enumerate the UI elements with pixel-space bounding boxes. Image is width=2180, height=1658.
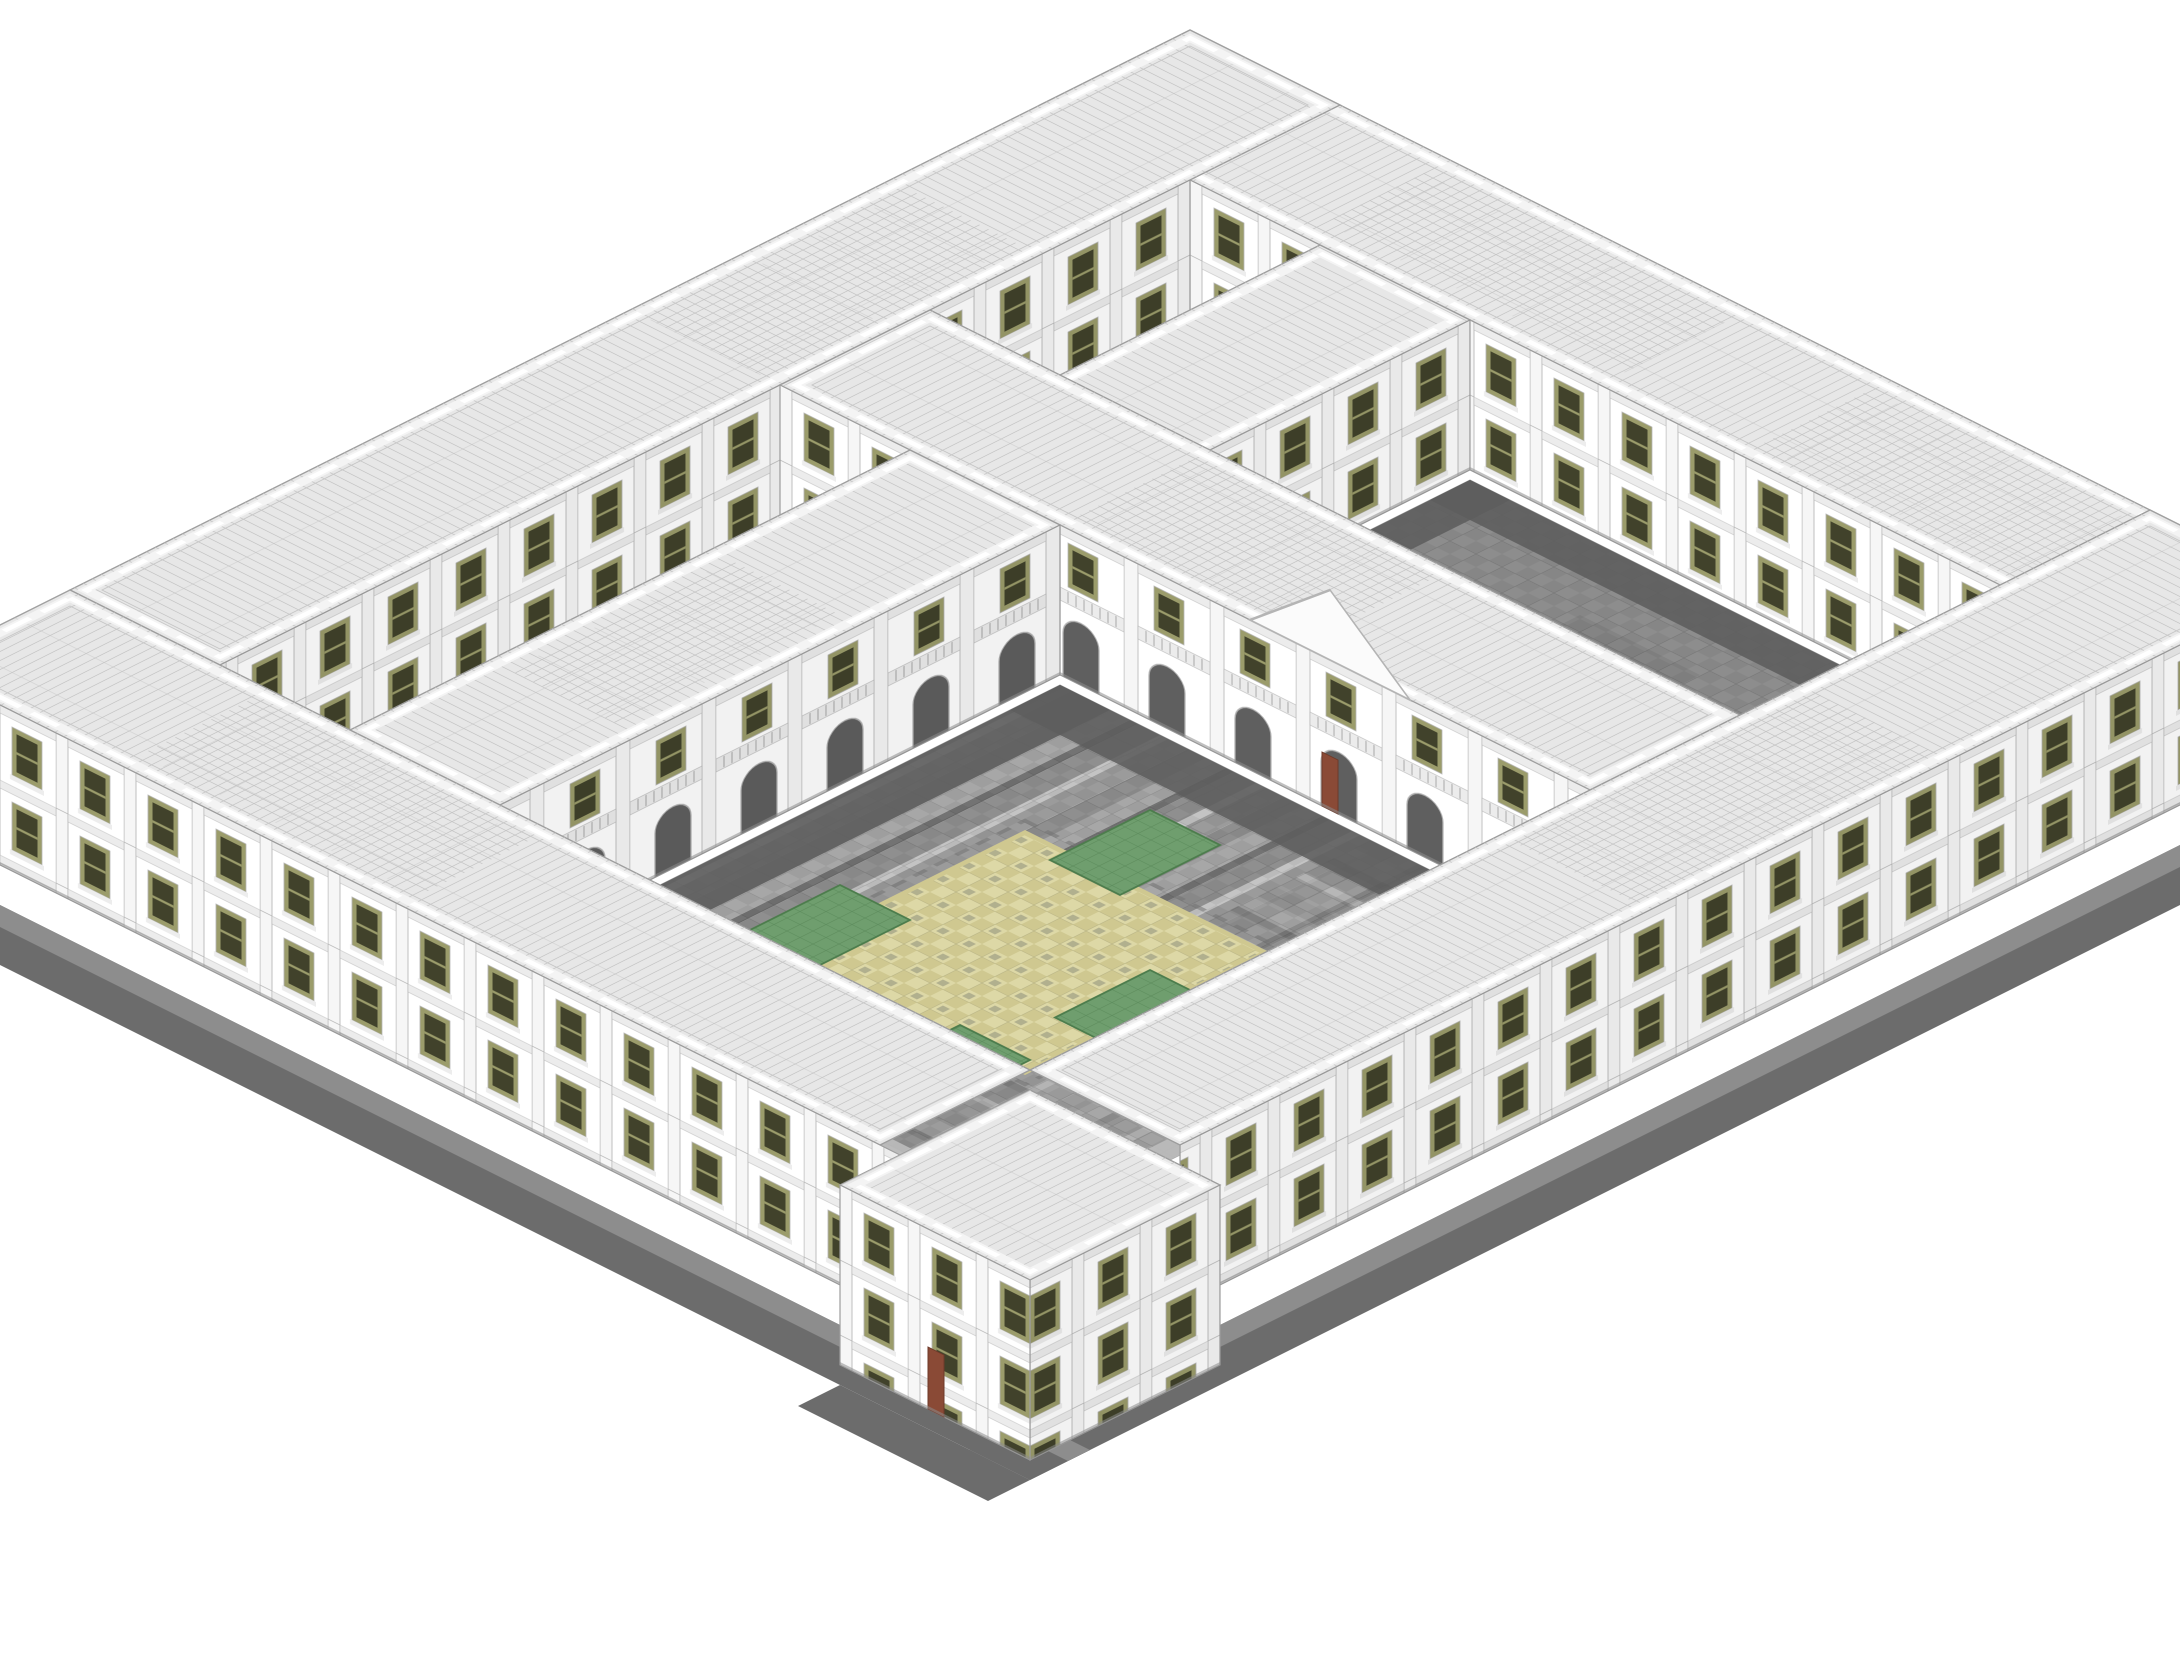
isometric-palace-scene bbox=[0, 0, 2180, 1658]
corner-door bbox=[928, 1347, 944, 1417]
palace-render-canvas bbox=[0, 0, 2180, 1658]
